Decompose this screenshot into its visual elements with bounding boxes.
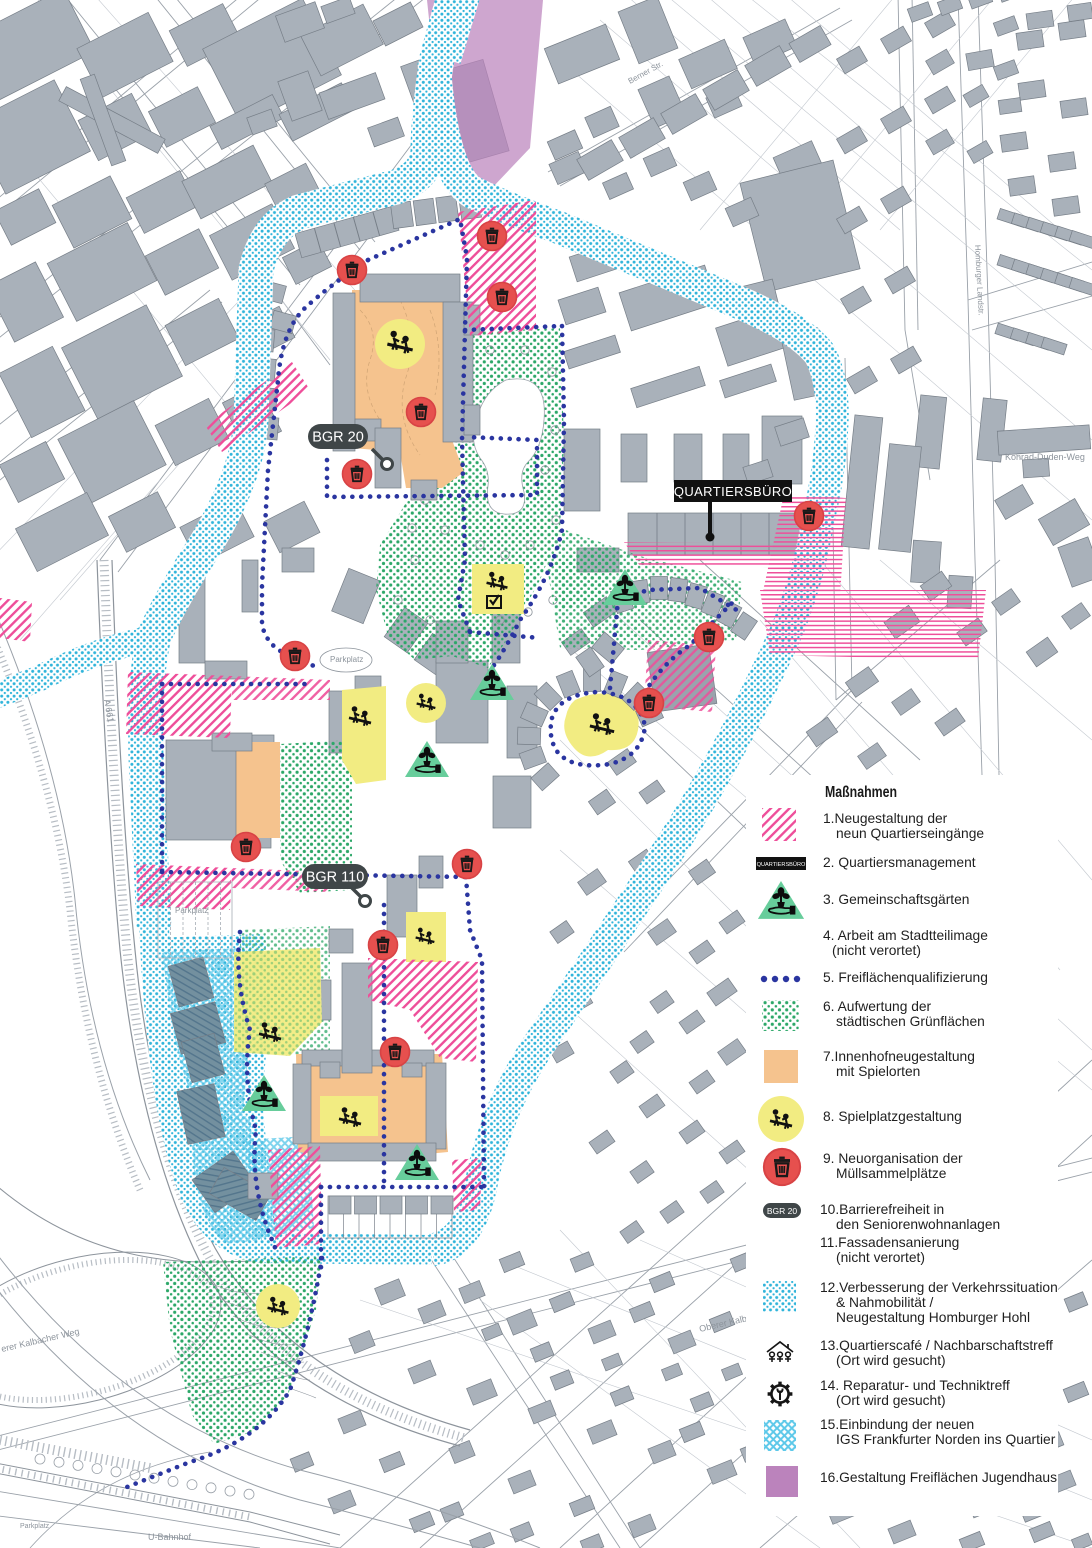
svg-text:15.Einbindung der neuen: 15.Einbindung der neuen [820, 1417, 974, 1432]
svg-text:2. Quartiersmanagement: 2. Quartiersmanagement [823, 855, 976, 870]
svg-text:7.Innenhofneugestaltung: 7.Innenhofneugestaltung [823, 1049, 975, 1064]
svg-text:(Ort wird gesucht): (Ort wird gesucht) [836, 1393, 946, 1408]
svg-text:Müllsammelplätze: Müllsammelplätze [836, 1166, 947, 1181]
svg-text:11.Fassadensanierung: 11.Fassadensanierung [820, 1235, 959, 1250]
svg-text:1.Neugestaltung der: 1.Neugestaltung der [823, 811, 948, 826]
svg-text:3. Gemeinschaftsgärten: 3. Gemeinschaftsgärten [823, 892, 969, 907]
svg-text:13.Quartierscafé / Nachbarscha: 13.Quartierscafé / Nachbarschaftstreff [820, 1338, 1053, 1353]
svg-text:4. Arbeit am Stadtteilimage: 4. Arbeit am Stadtteilimage [823, 928, 988, 943]
svg-text:& Nahmobilität /: & Nahmobilität / [836, 1295, 934, 1310]
svg-text:QUARTIERSBÜRO: QUARTIERSBÜRO [674, 484, 792, 499]
svg-text:BGR 20: BGR 20 [312, 430, 364, 446]
svg-text:(Ort wird gesucht): (Ort wird gesucht) [836, 1353, 946, 1368]
svg-text:10.Barrierefreiheit in: 10.Barrierefreiheit in [820, 1202, 944, 1217]
svg-text:den Seniorenwohnanlagen: den Seniorenwohnanlagen [836, 1217, 1000, 1232]
svg-text:8. Spielplatzgestaltung: 8. Spielplatzgestaltung [823, 1109, 962, 1124]
svg-text:14. Reparatur- und Techniktref: 14. Reparatur- und Techniktreff [820, 1378, 1010, 1393]
svg-text:BGR 110: BGR 110 [306, 870, 365, 886]
svg-text:(nicht verortet): (nicht verortet) [836, 1250, 925, 1265]
svg-text:Parkplatz: Parkplatz [330, 655, 363, 664]
svg-text:QUARTIERSBÜRO: QUARTIERSBÜRO [757, 861, 806, 868]
svg-text:6. Aufwertung der: 6. Aufwertung der [823, 999, 932, 1014]
svg-text:IGS Frankfurter Norden ins Qua: IGS Frankfurter Norden ins Quartier [836, 1432, 1056, 1447]
svg-text:BGR 20: BGR 20 [767, 1206, 798, 1216]
svg-text:U-Bahnhof: U-Bahnhof [148, 1532, 192, 1542]
svg-text:Parkplatz: Parkplatz [20, 1523, 50, 1530]
svg-text:Konrad-Duden-Weg: Konrad-Duden-Weg [1005, 452, 1085, 462]
svg-text:9. Neuorganisation der: 9. Neuorganisation der [823, 1151, 963, 1166]
svg-text:Neugestaltung Homburger Hohl: Neugestaltung Homburger Hohl [836, 1310, 1030, 1325]
svg-text:12.Verbesserung der Verkehrssi: 12.Verbesserung der Verkehrssituation [820, 1280, 1058, 1295]
svg-text:5. Freiflächenqualifizierung: 5. Freiflächenqualifizierung [823, 970, 988, 985]
svg-text:neun Quartierseingänge: neun Quartierseingänge [836, 826, 984, 841]
svg-text:16.Gestaltung Freiflächen Juge: 16.Gestaltung Freiflächen Jugendhaus [820, 1470, 1057, 1485]
svg-text:Parkplatz: Parkplatz [175, 906, 208, 915]
svg-text:mit Spielorten: mit Spielorten [836, 1064, 920, 1079]
svg-text:Maßnahmen: Maßnahmen [825, 784, 897, 801]
svg-text:städtischen Grünflächen: städtischen Grünflächen [836, 1014, 985, 1029]
svg-text:(nicht verortet): (nicht verortet) [832, 943, 921, 958]
